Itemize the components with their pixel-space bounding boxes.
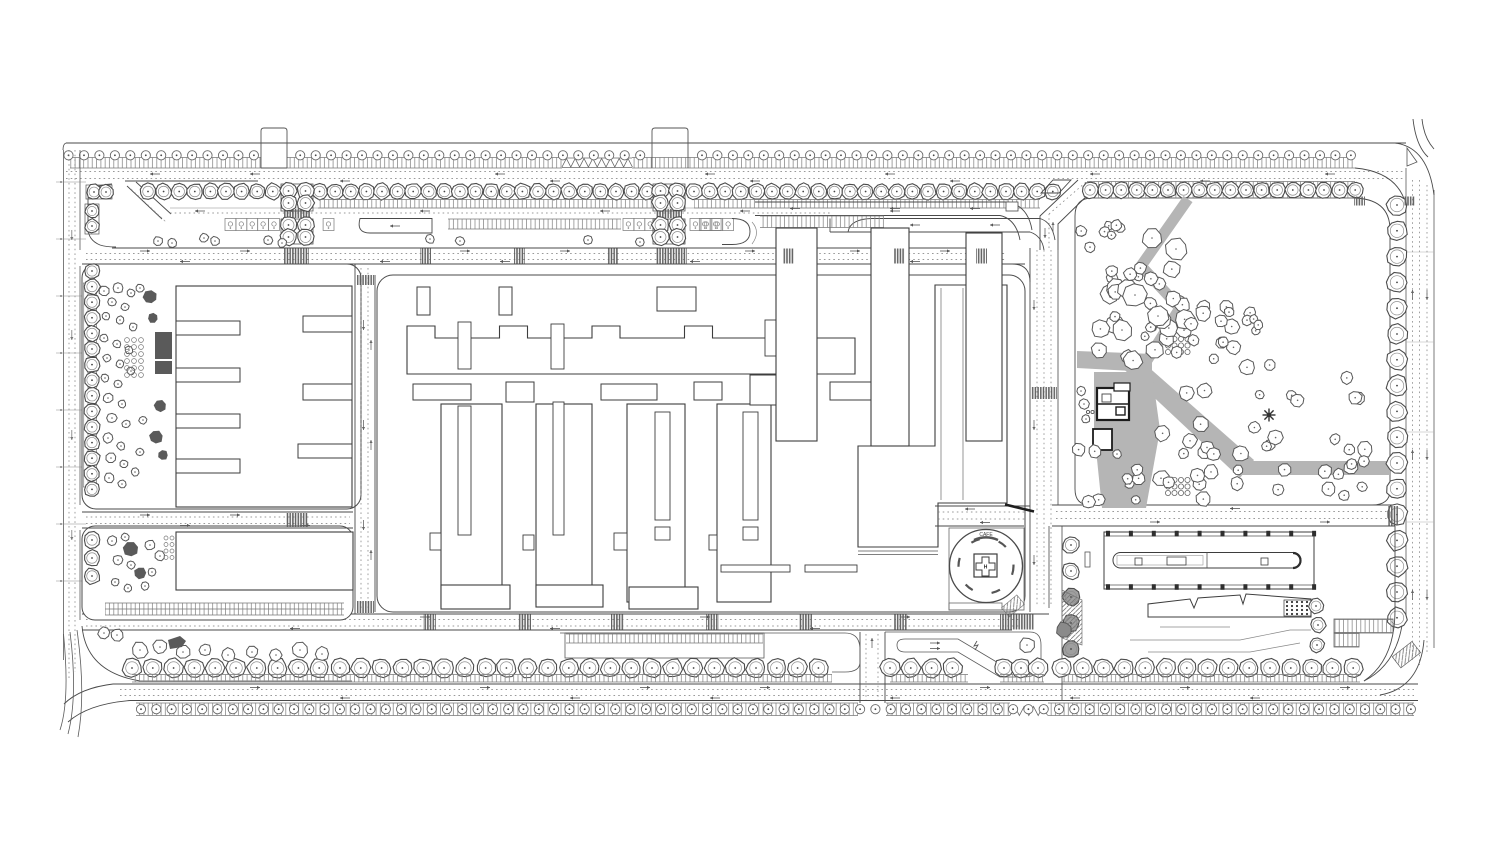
svg-text:H: H xyxy=(984,565,988,571)
svg-text:CAFE: CAFE xyxy=(979,532,993,538)
